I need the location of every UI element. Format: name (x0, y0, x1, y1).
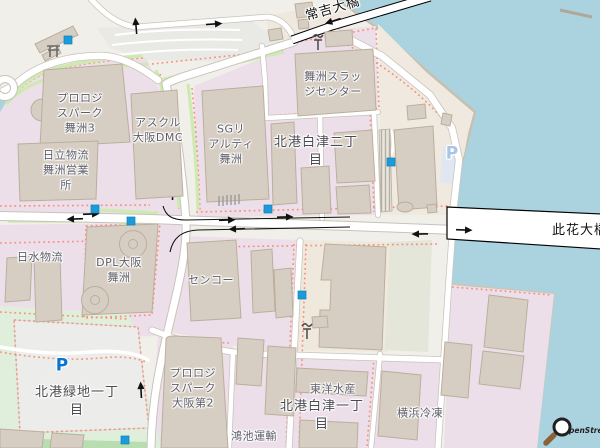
area-label-prologis3: プロロジスパーク舞洲3 (57, 91, 103, 136)
map-tile-graphics (0, 0, 600, 448)
area-label-dpl: DPL大阪舞洲 (96, 255, 142, 285)
area-label-sg-realty: SGリアルティ舞洲 (208, 122, 253, 167)
area-label-nissui: 日水物流 (17, 250, 63, 265)
parking-icon-park: P (56, 359, 68, 374)
area-label-konoike: 鴻池運輸 (231, 429, 277, 444)
district-label-hokko-ryokuchi-1: 北港緑地一丁目 (35, 384, 119, 420)
area-label-askul: アスクル大阪DMC (133, 115, 183, 145)
area-label-yokohama-reizo: 横浜冷凍 (397, 406, 443, 421)
area-label-prologis-osaka2: プロロジスパーク大阪第2 (170, 366, 216, 411)
area-label-toyo-suisan: 東洋水産 (310, 382, 356, 397)
district-label-hokko-shiratsu-2: 北港白津二丁目 (274, 134, 358, 170)
district-label-hokko-shiratsu-1: 北港白津一丁目 (280, 398, 364, 434)
hatched-structure (379, 129, 392, 212)
road-label-konohana-bridge: 此花大橋 (552, 223, 600, 238)
map-canvas[interactable]: プロロジスパーク舞洲3 日立物流舞洲営業所 アスクル大阪DMC SGリアルティ舞… (0, 0, 600, 448)
lot-graygreen-east (385, 240, 432, 352)
area-label-senko: センコー (188, 273, 234, 288)
parking-icon-wharf: P (446, 147, 458, 162)
osm-attribution[interactable]: penStreetMap (569, 423, 600, 438)
area-label-hitachi: 日立物流舞洲営業所 (43, 148, 89, 193)
area-label-sludge-center: 舞洲スラッジセンター (304, 69, 362, 99)
